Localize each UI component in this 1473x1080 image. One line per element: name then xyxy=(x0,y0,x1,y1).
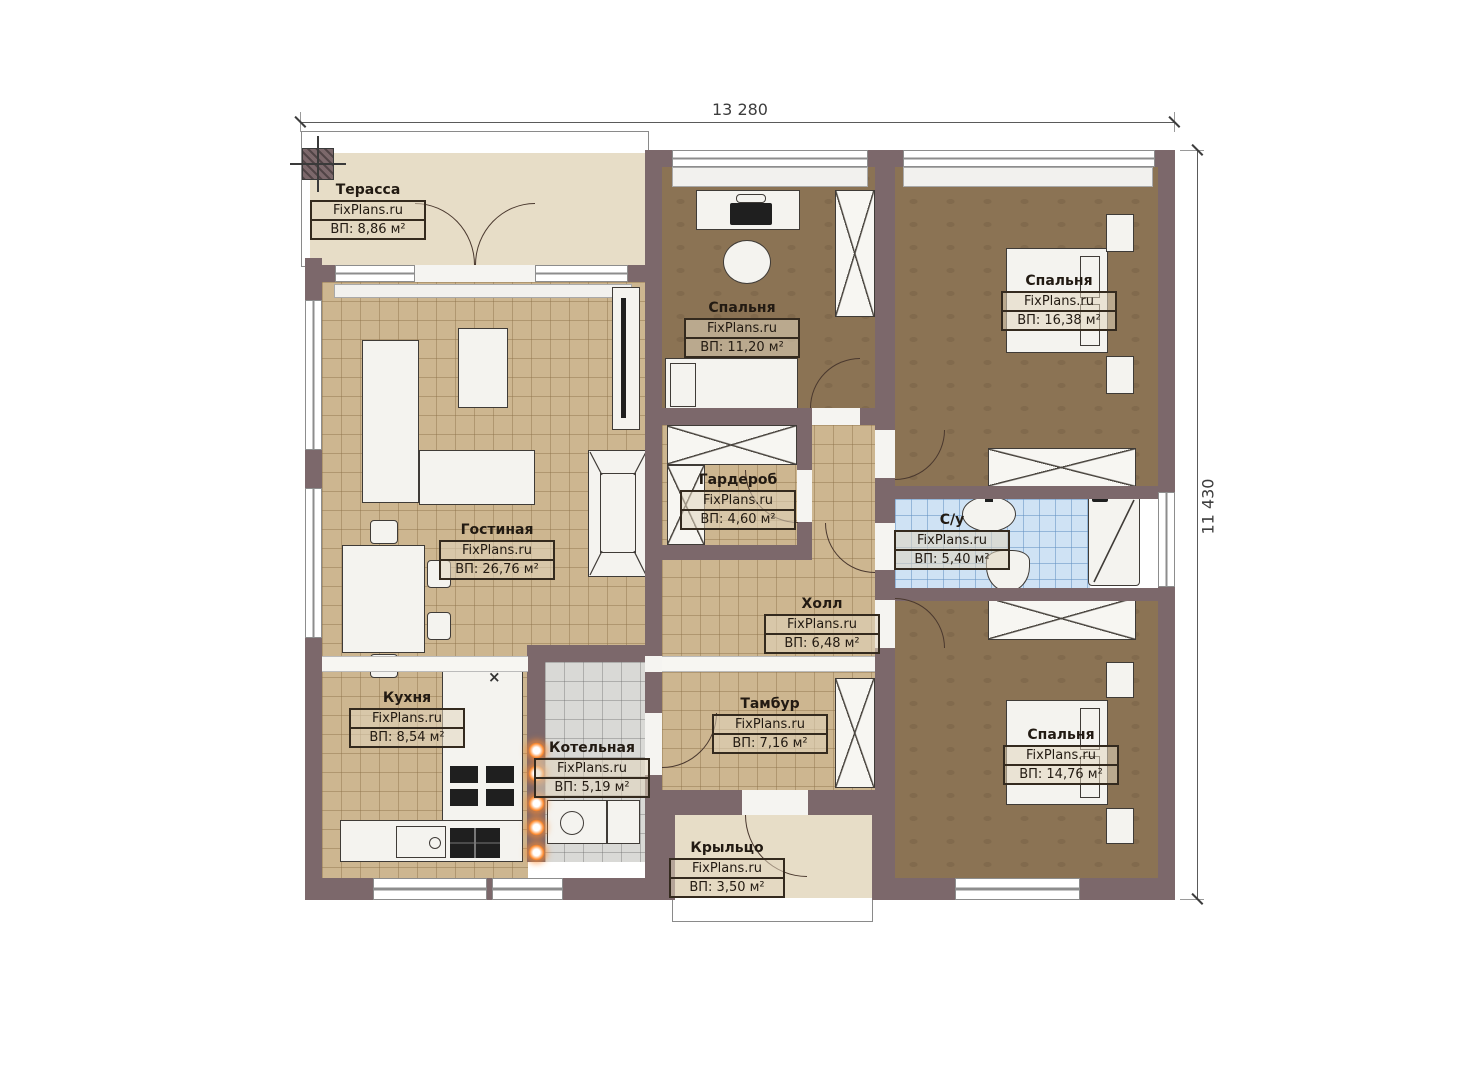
label-porch: Крыльцо FixPlans.ru ВП: 3,50 м² xyxy=(669,840,785,898)
shower-tray xyxy=(1088,494,1140,586)
radiator-dot-4 xyxy=(528,819,545,836)
opening-terrace-doors xyxy=(415,265,535,282)
label-vestibule: Тамбур FixPlans.ru ВП: 7,16 м² xyxy=(712,696,828,754)
wardrobe-bedroom-middle xyxy=(835,190,875,317)
label-bathroom: С/у FixPlans.ru ВП: 5,40 м² xyxy=(894,512,1010,570)
nightstand-top-1 xyxy=(1106,214,1134,252)
tv-cabinet xyxy=(612,287,640,430)
opening-bedroom-middle-door xyxy=(812,408,860,425)
room-name: Гардероб xyxy=(699,472,778,488)
wall-middle-right xyxy=(875,150,895,883)
watermark: FixPlans.ru xyxy=(669,858,785,879)
room-area: ВП: 14,76 м² xyxy=(1003,764,1119,785)
floor-transition-strip-left xyxy=(322,656,528,672)
label-terrace: Терасса FixPlans.ru ВП: 8,86 м² xyxy=(310,182,426,240)
room-name: Гостиная xyxy=(461,522,534,538)
nightstand-bottom-2 xyxy=(1106,808,1134,844)
room-area: ВП: 6,48 м² xyxy=(764,633,880,654)
room-name: Тамбур xyxy=(740,696,799,712)
dimension-line-top xyxy=(300,122,1175,123)
room-area: ВП: 11,20 м² xyxy=(684,337,800,358)
coffee-table xyxy=(458,328,508,408)
watermark: FixPlans.ru xyxy=(1003,745,1119,766)
window-left-1 xyxy=(305,300,322,450)
opening-entrance-door xyxy=(742,790,808,815)
opening-garderob-door xyxy=(797,470,812,522)
room-area: ВП: 4,60 м² xyxy=(680,509,796,530)
sofa-chaise-section xyxy=(419,450,535,505)
wall-porch-stub-right xyxy=(872,790,895,900)
bedroom-middle-sill xyxy=(672,167,868,187)
label-bedroom-top-right: Спальня FixPlans.ru ВП: 16,38 м² xyxy=(1001,273,1117,331)
single-bed-pillow xyxy=(670,363,696,407)
floor-transition-strip-middle xyxy=(662,656,875,672)
wall-garderob-bottom xyxy=(662,545,812,560)
label-hall: Холл FixPlans.ru ВП: 6,48 м² xyxy=(764,596,880,654)
room-area: ВП: 7,16 м² xyxy=(712,733,828,754)
room-area: ВП: 5,19 м² xyxy=(534,777,650,798)
tv-screen xyxy=(621,298,626,418)
room-area: ВП: 5,40 м² xyxy=(894,549,1010,570)
stove-burner-4 xyxy=(486,789,514,806)
room-name: Спальня xyxy=(1025,273,1092,289)
label-wardrobe-room: Гардероб FixPlans.ru ВП: 4,60 м² xyxy=(680,472,796,530)
terrace-door-track xyxy=(334,284,632,298)
window-terrace-left xyxy=(335,265,415,282)
room-area: ВП: 16,38 м² xyxy=(1001,310,1117,331)
dimension-width-label: 13 280 xyxy=(660,100,820,119)
watermark: FixPlans.ru xyxy=(680,490,796,511)
watermark: FixPlans.ru xyxy=(712,714,828,735)
floor-plan: × xyxy=(0,0,1473,1080)
label-kitchen: Кухня FixPlans.ru ВП: 8,54 м² xyxy=(349,690,465,748)
room-name: Спальня xyxy=(708,300,775,316)
kitchen-sink xyxy=(396,826,446,858)
watermark: FixPlans.ru xyxy=(534,758,650,779)
window-bottom-kitchen-2 xyxy=(492,878,563,900)
wall-bathroom-bottom xyxy=(895,588,1158,601)
dining-chair-top xyxy=(370,520,398,544)
fireplace-inner xyxy=(600,473,636,553)
radiator-dot-5 xyxy=(528,844,545,861)
window-right-bathroom xyxy=(1158,492,1175,587)
room-area: ВП: 8,86 м² xyxy=(310,219,426,240)
window-left-2 xyxy=(305,488,322,638)
room-name: С/у xyxy=(940,512,965,528)
label-bedroom-bottom-right: Спальня FixPlans.ru ВП: 14,76 м² xyxy=(1003,727,1119,785)
wardrobe-above-garderob xyxy=(667,425,797,465)
wardrobe-vestibule xyxy=(835,678,875,788)
dining-table xyxy=(342,545,425,653)
dining-chair-right-2 xyxy=(427,612,451,640)
room-name: Спальня xyxy=(1027,727,1094,743)
nightstand-bottom-1 xyxy=(1106,662,1134,698)
printer-top xyxy=(736,194,766,203)
kitchen-appliance xyxy=(450,828,500,858)
window-top-bedroom-right xyxy=(903,150,1155,167)
room-area: ВП: 8,54 м² xyxy=(349,727,465,748)
room-name: Холл xyxy=(802,596,843,612)
room-area: ВП: 3,50 м² xyxy=(669,877,785,898)
watermark: FixPlans.ru xyxy=(894,530,1010,551)
sofa-vertical-section xyxy=(362,340,419,503)
opening-hall-bathroom xyxy=(875,523,895,570)
stove-burner-1 xyxy=(450,766,478,783)
room-name: Котельная xyxy=(549,740,635,756)
washing-machine xyxy=(547,800,640,844)
bedroom-top-right-sill xyxy=(903,167,1153,187)
watermark: FixPlans.ru xyxy=(310,200,426,221)
wardrobe-bedroom-top-right xyxy=(988,448,1136,487)
label-boiler-room: Котельная FixPlans.ru ВП: 5,19 м² xyxy=(534,740,650,798)
stove-burner-3 xyxy=(450,789,478,806)
wall-boiler-top xyxy=(527,645,662,662)
dimension-height-label: 11 430 xyxy=(1199,467,1218,547)
watermark: FixPlans.ru xyxy=(439,540,555,561)
watermark: FixPlans.ru xyxy=(349,708,465,729)
room-name: Терасса xyxy=(336,182,401,198)
label-living-room: Гостиная FixPlans.ru ВП: 26,76 м² xyxy=(439,522,555,580)
opening-living-hall xyxy=(645,656,662,672)
watermark: FixPlans.ru xyxy=(764,614,880,635)
window-bottom-bedroom xyxy=(955,878,1080,900)
window-top-bedroom-middle xyxy=(672,150,868,167)
room-name: Кухня xyxy=(383,690,431,706)
office-chair xyxy=(723,240,771,284)
wall-living-middle xyxy=(645,150,662,790)
opening-hall-bedroom-top xyxy=(875,430,895,478)
room-name: Крыльцо xyxy=(690,840,763,856)
label-bedroom-middle: Спальня FixPlans.ru ВП: 11,20 м² xyxy=(684,300,800,358)
watermark: FixPlans.ru xyxy=(684,318,800,339)
window-terrace-right xyxy=(535,265,628,282)
watermark: FixPlans.ru xyxy=(1001,291,1117,312)
stove-burner-2 xyxy=(486,766,514,783)
window-bottom-kitchen-1 xyxy=(373,878,487,900)
printer xyxy=(730,203,772,225)
wardrobe-bedroom-bottom-right xyxy=(988,597,1136,640)
wall-bathroom-top xyxy=(895,486,1158,499)
room-area: ВП: 26,76 м² xyxy=(439,559,555,580)
nightstand-top-2 xyxy=(1106,356,1134,394)
